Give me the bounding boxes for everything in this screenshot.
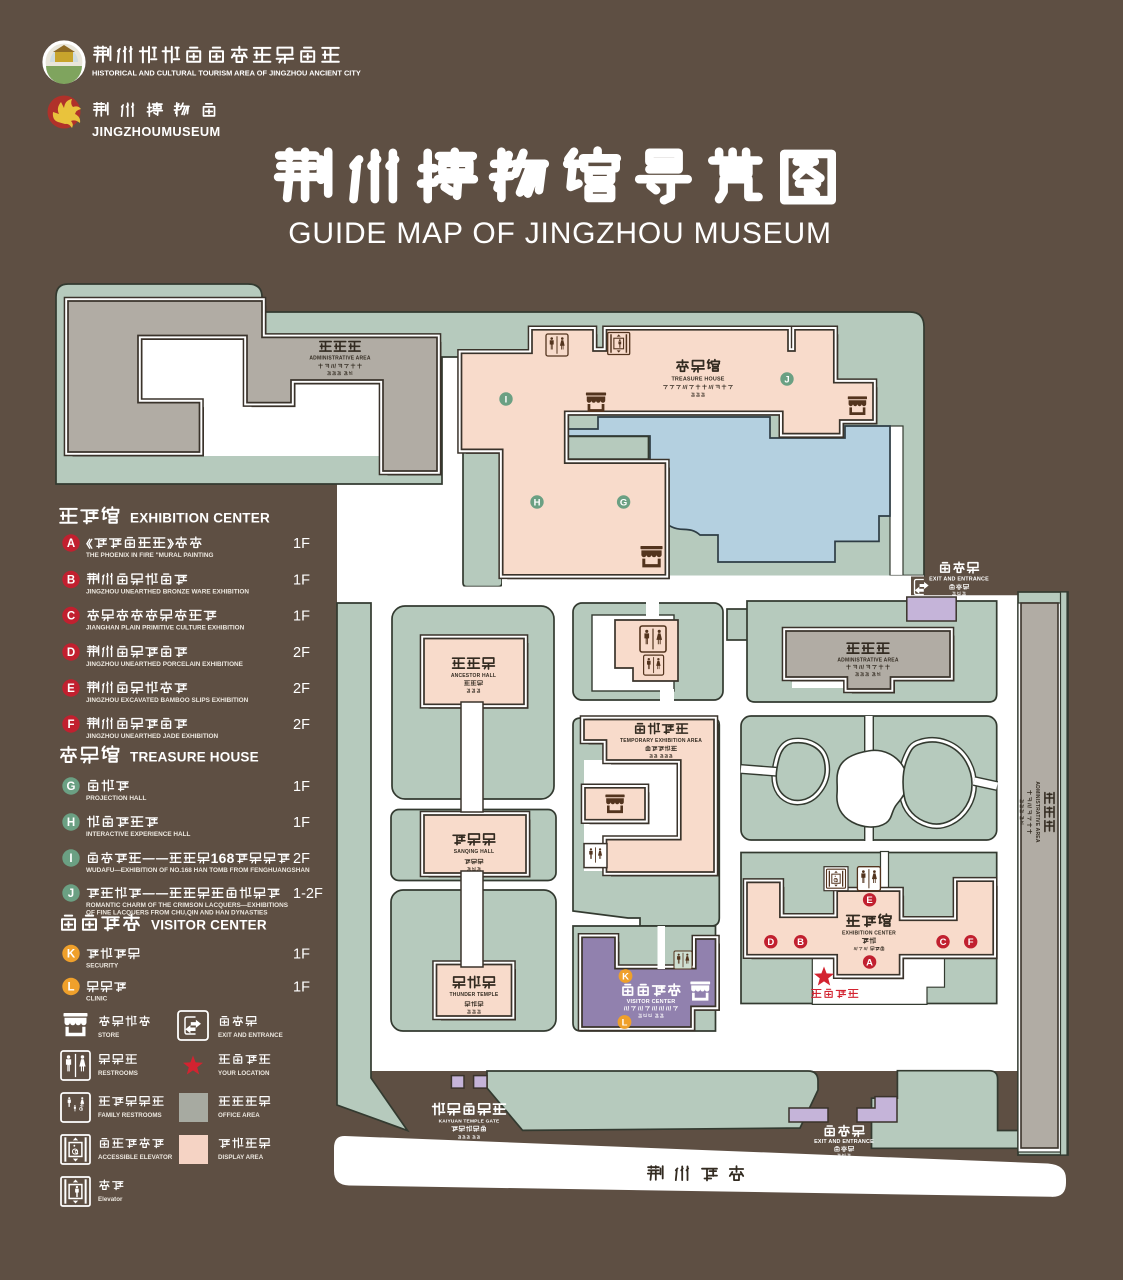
svg-text:EXIT AND ENTRANCE: EXIT AND ENTRANCE — [929, 577, 989, 583]
svg-text:I: I — [69, 853, 72, 865]
svg-text:INTERACTIVE EXPERIENCE HALL: INTERACTIVE EXPERIENCE HALL — [86, 831, 190, 838]
svg-text:ACCESSIBLE ELEVATOR: ACCESSIBLE ELEVATOR — [98, 1154, 173, 1161]
svg-text:1: 1 — [211, 851, 219, 866]
svg-text:SECURITY: SECURITY — [86, 962, 119, 969]
svg-text:ANCESTOR HALL: ANCESTOR HALL — [451, 673, 496, 679]
svg-text:VISITOR CENTER: VISITOR CENTER — [151, 918, 267, 933]
svg-text:RESTROOMS: RESTROOMS — [98, 1070, 138, 1077]
svg-text:C: C — [67, 611, 75, 623]
svg-text:JINGZHOU UNEARTHED BRONZE WARE: JINGZHOU UNEARTHED BRONZE WARE EXHIBITIO… — [86, 588, 249, 595]
svg-text:2F: 2F — [293, 681, 310, 697]
svg-text:F: F — [67, 719, 74, 731]
svg-text:1F: 1F — [293, 573, 310, 589]
svg-text:KAIYUAN TEMPLE GATE: KAIYUAN TEMPLE GATE — [439, 1119, 500, 1125]
svg-text:SANQING HALL: SANQING HALL — [454, 849, 494, 855]
svg-text:A: A — [67, 538, 75, 550]
svg-text:GUIDE MAP OF JINGZHOU MUSEUM: GUIDE MAP OF JINGZHOU MUSEUM — [288, 217, 832, 250]
svg-text:JINGZHOUMUSEUM: JINGZHOUMUSEUM — [92, 124, 221, 139]
svg-text:G: G — [620, 497, 627, 508]
svg-text:H: H — [534, 497, 541, 508]
svg-text:THE PHOENIX IN FIRE "MURAL PAI: THE PHOENIX IN FIRE "MURAL PAINTING — [86, 552, 213, 559]
svg-text:PROJECTION HALL: PROJECTION HALL — [86, 795, 146, 802]
svg-text:K: K — [67, 949, 76, 961]
svg-text:B: B — [797, 937, 804, 948]
svg-text:J: J — [68, 888, 74, 900]
svg-text:1F: 1F — [293, 980, 310, 996]
svg-text:EXIT AND ENTRANCE: EXIT AND ENTRANCE — [218, 1032, 283, 1039]
svg-text:1F: 1F — [293, 779, 310, 795]
svg-text:ADMINISTRATIVE AREA: ADMINISTRATIVE AREA — [309, 356, 370, 362]
svg-text:ROMANTIC CHARM OF THE CRIMSON: ROMANTIC CHARM OF THE CRIMSON LACQUERS—E… — [86, 902, 289, 909]
svg-text:ADMINISTRATIVE AREA: ADMINISTRATIVE AREA — [1034, 781, 1040, 842]
svg-text:E: E — [67, 683, 75, 695]
svg-text:JINGZHOU UNEARTHED PORCELAIN E: JINGZHOU UNEARTHED PORCELAIN EXHIBITIONE — [86, 661, 244, 668]
svg-text:DISPLAY AREA: DISPLAY AREA — [218, 1154, 264, 1161]
svg-text:VISITOR CENTER: VISITOR CENTER — [627, 999, 676, 1005]
svg-text:TREASURE HOUSE: TREASURE HOUSE — [130, 750, 259, 765]
svg-text:HISTORICAL AND CULTURAL TOURIS: HISTORICAL AND CULTURAL TOURISM AREA OF … — [92, 69, 361, 78]
svg-text:1F: 1F — [293, 815, 310, 831]
svg-text:A: A — [866, 957, 873, 968]
svg-text:ADMINISTRATIVE AREA: ADMINISTRATIVE AREA — [837, 658, 898, 664]
svg-text:1F: 1F — [293, 536, 310, 552]
svg-text:6: 6 — [219, 851, 227, 866]
svg-text:JIANGHAN PLAIN PRIMITIVE CULTU: JIANGHAN PLAIN PRIMITIVE CULTURE EXHIBIT… — [86, 624, 245, 631]
svg-text:I: I — [505, 394, 508, 405]
svg-text:OF FINE LACQUERS FROM CHU,QIN: OF FINE LACQUERS FROM CHU,QIN AND HAN DY… — [86, 909, 268, 916]
svg-text:2F: 2F — [293, 851, 310, 867]
svg-text:1F: 1F — [293, 947, 310, 963]
svg-text:WUDAFU—EXHIBITION OF NO.168 HA: WUDAFU—EXHIBITION OF NO.168 HAN TOMB FRO… — [86, 867, 310, 874]
svg-text:B: B — [67, 575, 75, 587]
svg-text:J: J — [784, 374, 789, 385]
svg-text:E: E — [866, 895, 872, 906]
svg-text:EXHIBITION CENTER: EXHIBITION CENTER — [842, 931, 896, 937]
svg-text:YOUR LOCATION: YOUR LOCATION — [218, 1070, 270, 1077]
svg-text:F: F — [968, 937, 974, 948]
svg-text:JINGZHOU EXCAVATED BAMBOO SLIP: JINGZHOU EXCAVATED BAMBOO SLIPS EXHIBITI… — [86, 697, 249, 704]
svg-text:2F: 2F — [293, 717, 310, 733]
svg-text:FAMILY RESTROOMS: FAMILY RESTROOMS — [98, 1112, 162, 1119]
svg-text:L: L — [622, 1017, 628, 1028]
svg-text:D: D — [67, 647, 75, 659]
svg-text:1F: 1F — [293, 609, 310, 625]
svg-text:D: D — [767, 937, 774, 948]
svg-text:G: G — [67, 781, 76, 793]
svg-text:8: 8 — [227, 851, 235, 866]
svg-text:K: K — [622, 971, 629, 982]
svg-text:TEMPORARY EXHIBITION AREA: TEMPORARY EXHIBITION AREA — [620, 738, 702, 744]
svg-text:THUNDER TEMPLE: THUNDER TEMPLE — [450, 992, 499, 998]
svg-text:EXHIBITION CENTER: EXHIBITION CENTER — [130, 511, 270, 526]
svg-text:2F: 2F — [293, 645, 310, 661]
svg-text:STORE: STORE — [98, 1032, 119, 1039]
svg-text:EXIT AND ENTRANCE: EXIT AND ENTRANCE — [814, 1139, 874, 1145]
svg-text:TREASURE HOUSE: TREASURE HOUSE — [671, 377, 724, 383]
svg-text:C: C — [940, 937, 947, 948]
svg-text:OFFICE AREA: OFFICE AREA — [218, 1112, 260, 1119]
svg-text:Elevator: Elevator — [98, 1196, 123, 1203]
svg-text:1-2F: 1-2F — [293, 886, 323, 902]
svg-text:H: H — [67, 817, 75, 829]
svg-text:CLINIC: CLINIC — [86, 995, 108, 1002]
svg-text:L: L — [67, 982, 74, 994]
svg-text:JINGZHOU UNEARTHED JADE EXHIBI: JINGZHOU UNEARTHED JADE EXHIBITION — [86, 733, 218, 740]
